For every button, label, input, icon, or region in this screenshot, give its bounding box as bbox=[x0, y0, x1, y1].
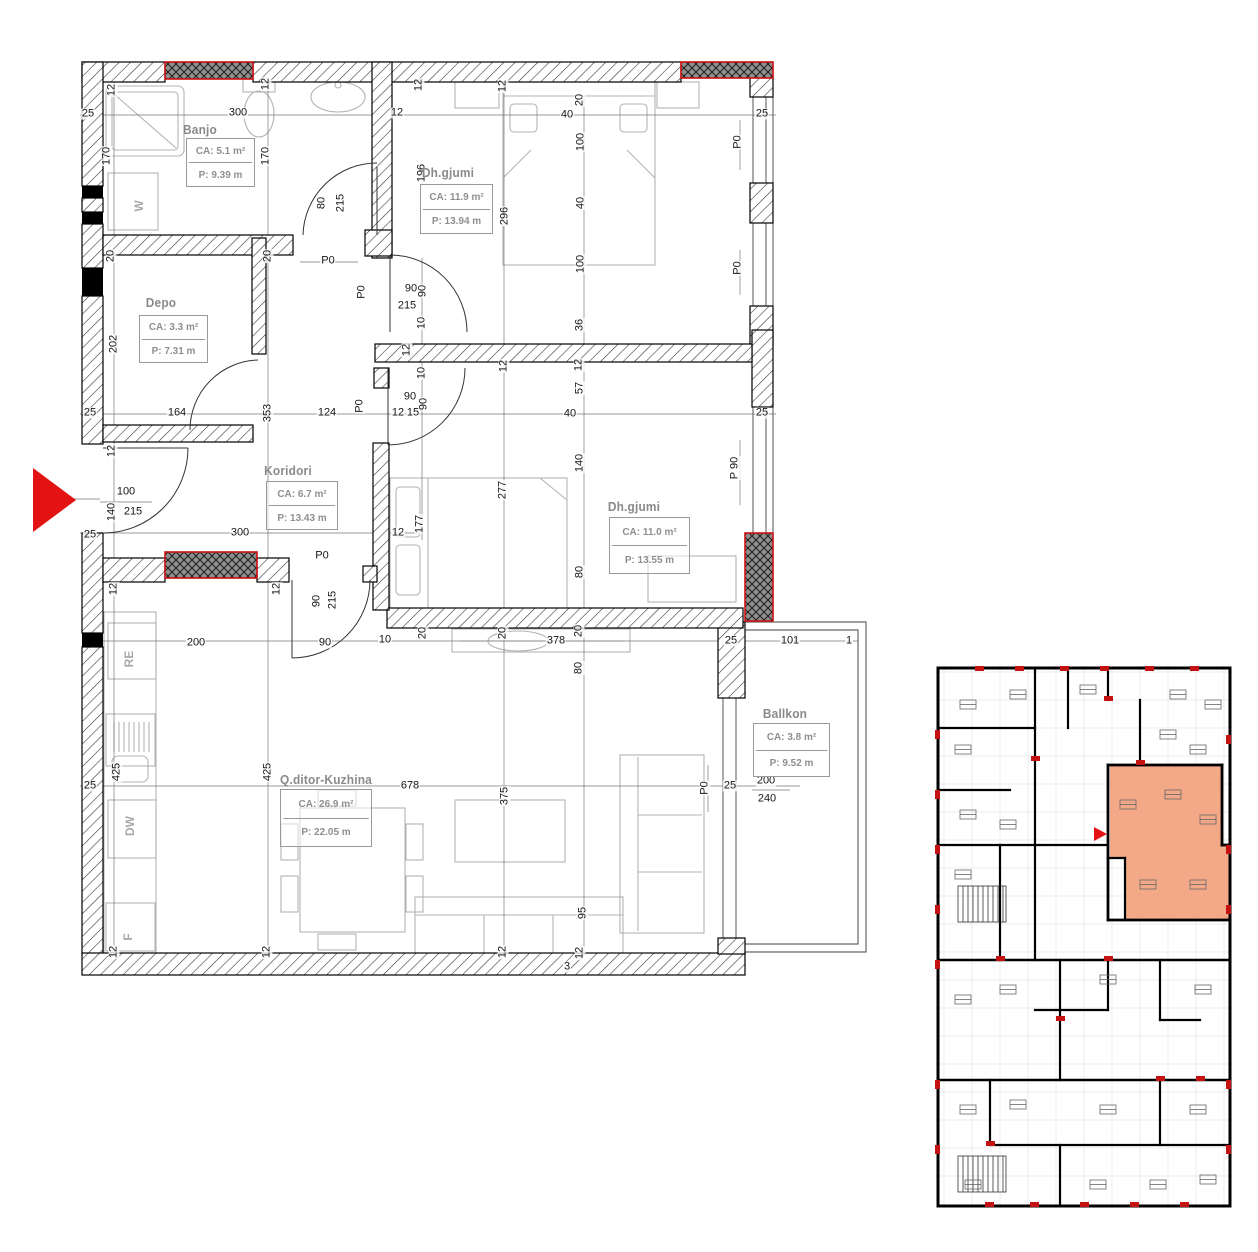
mini-plan-highlighted-unit bbox=[1110, 765, 1230, 920]
dresser bbox=[648, 556, 736, 602]
balcony-railing bbox=[745, 622, 866, 952]
sink bbox=[311, 82, 365, 112]
coffee-table bbox=[455, 800, 565, 862]
floor-plan-drawing bbox=[0, 0, 1258, 1252]
floor-plan-sheet: 2512170300121701212122040100401003629619… bbox=[0, 0, 1258, 1252]
furniture bbox=[104, 76, 736, 963]
mini-plan-furniture bbox=[955, 685, 1221, 1189]
dimension-lines bbox=[58, 70, 858, 965]
mini-plan-red-marks bbox=[935, 666, 1231, 1207]
nightstand bbox=[657, 82, 699, 108]
dining-table bbox=[281, 790, 423, 950]
bed-1 bbox=[503, 82, 655, 265]
entrance-arrow bbox=[33, 468, 76, 532]
bed-2 bbox=[390, 478, 567, 609]
mini-plan-entrance-arrow bbox=[1094, 827, 1107, 841]
washing-machine bbox=[108, 173, 158, 230]
nightstand bbox=[455, 82, 499, 108]
kitchen-counter bbox=[104, 612, 156, 953]
mini-plan-grid bbox=[936, 666, 1232, 1208]
mini-plan bbox=[935, 666, 1232, 1208]
main-plan bbox=[33, 62, 866, 975]
sofa-right bbox=[620, 755, 704, 933]
tv-console bbox=[452, 629, 630, 652]
